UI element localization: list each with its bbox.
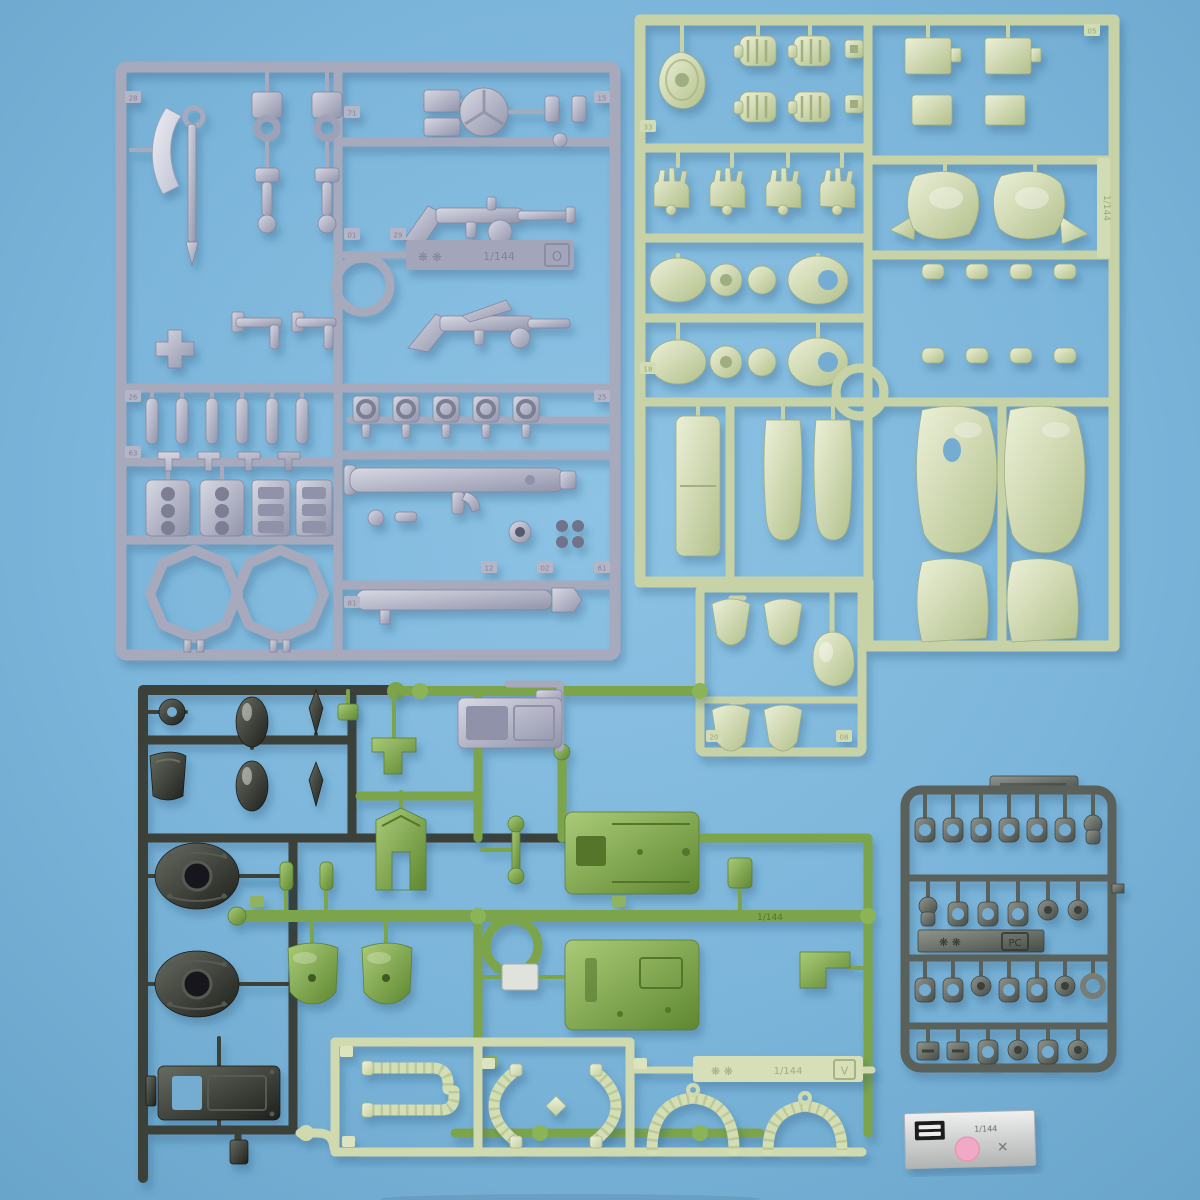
foot-sole-part bbox=[155, 951, 239, 1017]
small-part bbox=[545, 96, 559, 122]
svg-text:01: 01 bbox=[348, 232, 357, 240]
polycap-part bbox=[971, 818, 991, 842]
torso-block-part bbox=[565, 940, 699, 1030]
polycap-part bbox=[943, 978, 963, 1002]
polycap-part bbox=[1084, 815, 1102, 844]
polycap-part bbox=[1055, 976, 1075, 996]
maker-logo-marks: ❋ ❋ bbox=[711, 1065, 733, 1078]
small-part bbox=[572, 96, 586, 122]
polycap-part bbox=[971, 976, 991, 996]
svg-text:12: 12 bbox=[485, 565, 494, 573]
hatch-light-part bbox=[502, 964, 538, 990]
disc-part bbox=[460, 88, 508, 136]
small-part bbox=[728, 858, 752, 888]
part-number-tag bbox=[612, 896, 626, 907]
scale-text: 1/144 bbox=[774, 1066, 803, 1077]
svg-text:33: 33 bbox=[644, 124, 653, 132]
model-kit-photo: ❋ ❋ 1/144 O bbox=[0, 0, 1200, 1200]
svg-text:81: 81 bbox=[348, 600, 357, 608]
polycap-part bbox=[1038, 1040, 1058, 1064]
svg-text:63: 63 bbox=[129, 450, 138, 458]
runner-letter: PC bbox=[1008, 938, 1021, 949]
torso-block-part bbox=[565, 812, 699, 894]
head-dome-part bbox=[813, 632, 854, 686]
svg-text:20: 20 bbox=[710, 734, 719, 742]
small-part bbox=[553, 133, 567, 147]
scale-text: 1/144 bbox=[483, 250, 515, 263]
svg-text:05: 05 bbox=[1088, 28, 1097, 36]
polycap-part bbox=[999, 978, 1019, 1002]
part-number-tag bbox=[340, 1046, 353, 1057]
polycap-part bbox=[1038, 900, 1058, 920]
backpack-gray-part bbox=[458, 690, 562, 748]
box-part bbox=[424, 118, 460, 136]
maker-logo-marks: ❋ ❋ bbox=[418, 250, 442, 264]
part-number-tag bbox=[342, 1136, 355, 1147]
runner-tag-bar: ❋ ❋ 1/144 O bbox=[406, 240, 574, 270]
polycap-part bbox=[1008, 1040, 1028, 1060]
rail-scale-text: 1/144 bbox=[757, 913, 783, 923]
polycap-part bbox=[919, 897, 937, 926]
svg-text:71: 71 bbox=[348, 110, 357, 118]
manifold-block-part bbox=[146, 480, 332, 536]
svg-text:25: 25 bbox=[598, 394, 607, 402]
polycap-part bbox=[943, 818, 963, 842]
polycap-part bbox=[999, 818, 1019, 842]
foot-sole-part bbox=[155, 843, 239, 909]
svg-text:61: 61 bbox=[598, 565, 607, 573]
polycap-part bbox=[1008, 902, 1028, 926]
sticker-scale-text: 1/144 bbox=[974, 1124, 997, 1134]
small-part bbox=[395, 512, 417, 522]
long-box-part bbox=[676, 416, 720, 556]
maker-logo-marks: ❋ ❋ bbox=[939, 936, 961, 949]
polycap-part bbox=[1068, 1040, 1088, 1060]
svg-text:02: 02 bbox=[541, 565, 550, 573]
small-part bbox=[368, 510, 384, 526]
bracket-part bbox=[150, 752, 186, 800]
polycap-part bbox=[978, 1040, 998, 1064]
small-part bbox=[230, 1140, 248, 1164]
part-number-tag bbox=[250, 896, 264, 907]
svg-text:18: 18 bbox=[644, 366, 653, 374]
runner-letter: V bbox=[841, 1065, 849, 1078]
polycap-part bbox=[917, 1042, 939, 1060]
polycap-part bbox=[948, 902, 968, 926]
side-scale-text: 1/144 bbox=[1101, 195, 1111, 221]
backpack-plate-part bbox=[146, 1066, 280, 1120]
runner-tag-bar: ❋ ❋ 1/144 V bbox=[693, 1056, 863, 1082]
polycap-part bbox=[1027, 818, 1047, 842]
runner-letter: O bbox=[552, 250, 562, 265]
polycap-part bbox=[1027, 978, 1047, 1002]
runner-tag-bar: ❋ ❋ PC bbox=[918, 930, 1044, 952]
washer-part bbox=[159, 699, 185, 725]
polycap-part bbox=[915, 818, 935, 842]
polycap-part bbox=[1068, 900, 1088, 920]
polycap-part bbox=[915, 978, 935, 1002]
svg-text:08: 08 bbox=[840, 734, 849, 742]
polycap-part bbox=[1055, 818, 1075, 842]
svg-text:15: 15 bbox=[598, 95, 607, 103]
part-number-tag bbox=[634, 1058, 647, 1069]
box-part bbox=[424, 90, 460, 112]
svg-text:29: 29 bbox=[394, 232, 403, 240]
polycap-part bbox=[947, 1042, 969, 1060]
svg-text:28: 28 bbox=[129, 95, 138, 103]
sticker-sheet: 1/144 bbox=[904, 1110, 1035, 1168]
svg-text:26: 26 bbox=[129, 394, 138, 402]
sticker-logo-box bbox=[915, 1121, 945, 1141]
polycap-part bbox=[978, 902, 998, 926]
part-number-tag bbox=[482, 1058, 495, 1069]
